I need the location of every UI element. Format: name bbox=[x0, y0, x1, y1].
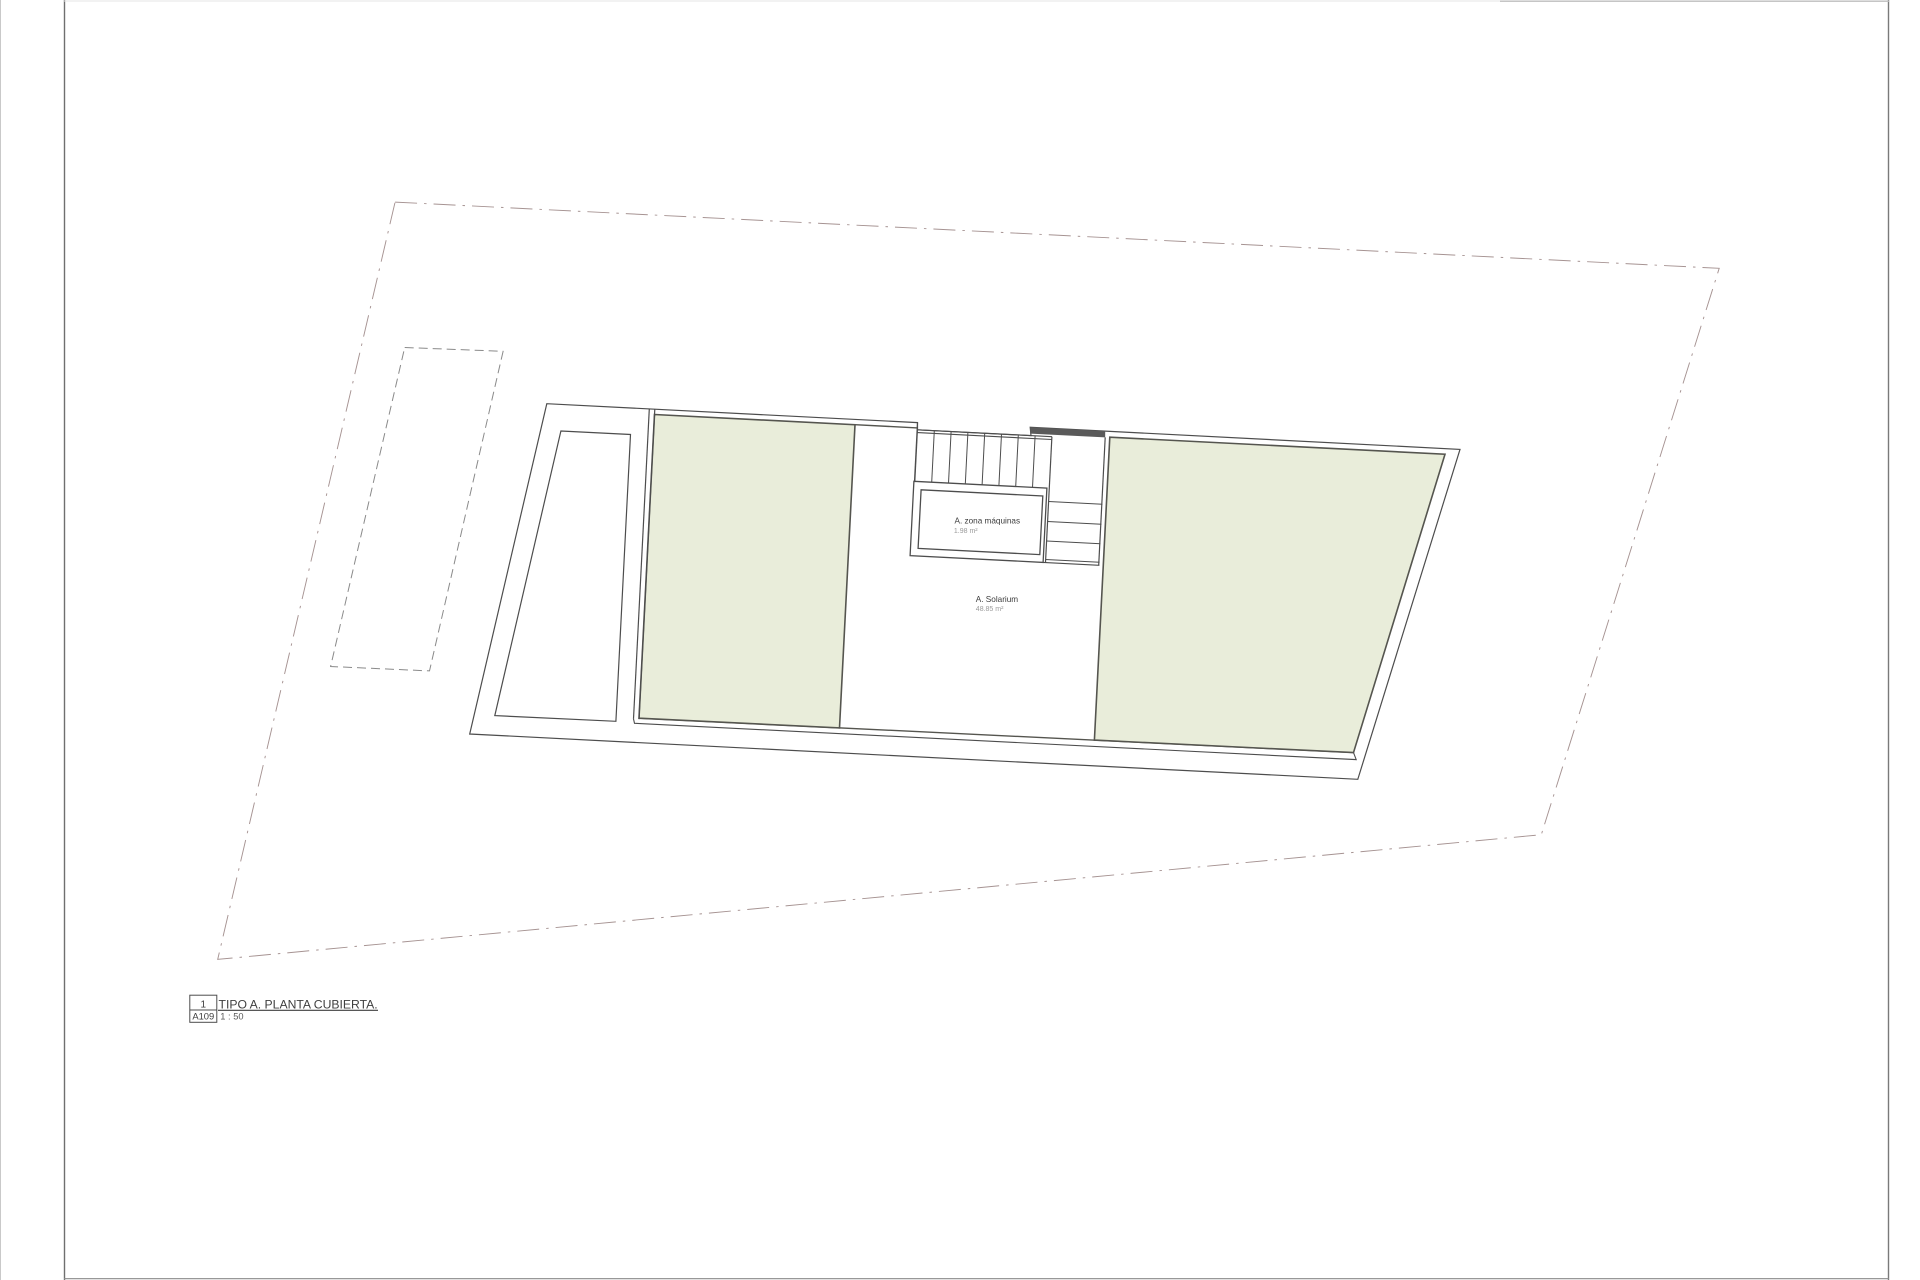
svg-text:A. zona máquinas: A. zona máquinas bbox=[955, 517, 1021, 526]
svg-text:1: 1 bbox=[201, 999, 207, 1010]
svg-text:A109: A109 bbox=[192, 1011, 214, 1022]
svg-text:48.85 m²: 48.85 m² bbox=[976, 606, 1004, 613]
svg-text:1.98 m²: 1.98 m² bbox=[954, 528, 978, 535]
svg-text:TIPO A. PLANTA CUBIERTA.: TIPO A. PLANTA CUBIERTA. bbox=[219, 998, 378, 1012]
svg-text:1 : 50: 1 : 50 bbox=[220, 1012, 243, 1022]
svg-text:A. Solarium: A. Solarium bbox=[976, 595, 1018, 604]
